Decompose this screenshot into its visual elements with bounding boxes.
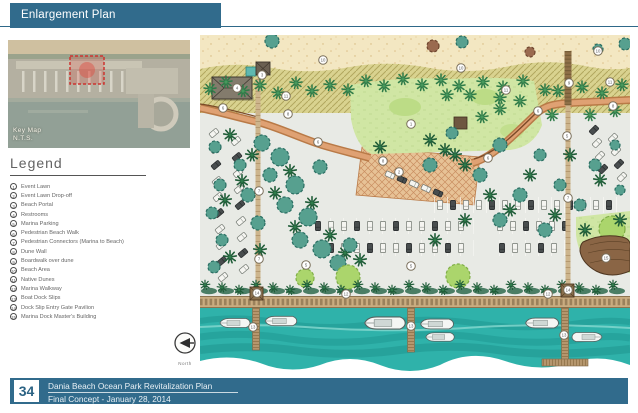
map-marker-7: 7 <box>564 194 573 203</box>
legend-item-label: Dune Wall <box>21 249 47 255</box>
legend-item: 6Pedestrian Beach Walk <box>10 228 195 237</box>
legend-item: 8Dune Wall <box>10 247 195 256</box>
legend-item: 7Pedestrian Connectors (Marina to Beach) <box>10 238 195 247</box>
legend-item-label: Event Lawn Drop-off <box>21 193 72 199</box>
map-marker-11: 11 <box>282 92 291 101</box>
key-map-caption: Key Map N.T.S. <box>13 127 41 142</box>
legend-item-number: 2 <box>10 192 17 199</box>
map-marker-8: 8 <box>609 102 618 111</box>
svg-text:12: 12 <box>344 292 349 297</box>
legend-item: 3Beach Portal <box>10 201 195 210</box>
map-marker-10: 10 <box>319 56 328 65</box>
legend-item-label: Marina Walkway <box>21 286 62 292</box>
dropoff-plaza <box>356 147 480 205</box>
map-marker-2: 2 <box>395 168 404 177</box>
svg-text:11: 11 <box>284 94 289 99</box>
legend-title: Legend <box>10 155 146 176</box>
svg-text:11: 11 <box>504 88 509 93</box>
svg-text:13: 13 <box>251 325 256 330</box>
legend-item: 1Event Lawn <box>10 182 195 191</box>
page-number: 34 <box>14 380 39 402</box>
map-marker-11: 11 <box>502 86 511 95</box>
legend-item: 13Boat Dock Slips <box>10 294 195 303</box>
legend-item-number: 5 <box>10 220 17 227</box>
svg-text:12: 12 <box>546 292 551 297</box>
north-arrow: North <box>169 331 201 366</box>
marina-walkway <box>200 296 630 308</box>
svg-text:13: 13 <box>562 333 567 338</box>
legend-item-label: Marina Dock Master's Building <box>21 314 96 320</box>
legend-item-number: 9 <box>10 258 17 265</box>
map-marker-8: 8 <box>284 110 293 119</box>
legend-item-number: 8 <box>10 248 17 255</box>
legend-items: 1Event Lawn2Event Lawn Drop-off3Beach Po… <box>10 182 195 321</box>
map-marker-4: 4 <box>233 84 242 93</box>
map-marker-12: 12 <box>342 290 351 299</box>
north-arrow-icon <box>171 331 199 357</box>
legend-item: 5Marina Parking <box>10 219 195 228</box>
footer-bar: 34 Dania Beach Ocean Park Revitalization… <box>10 378 628 404</box>
legend-item-number: 10 <box>10 267 17 274</box>
map-marker-5: 5 <box>302 261 311 270</box>
svg-text:10: 10 <box>596 49 601 54</box>
legend-item-number: 12 <box>10 285 17 292</box>
legend-item-label: Event Lawn <box>21 184 50 190</box>
legend-item-number: 6 <box>10 230 17 237</box>
legend-item-label: Marina Parking <box>21 221 59 227</box>
legend-item-label: Boardwalk over dune <box>21 258 74 264</box>
svg-text:14: 14 <box>255 291 260 296</box>
map-marker-14: 14 <box>253 289 262 298</box>
map-marker-6: 6 <box>484 154 493 163</box>
legend-item-label: Pedestrian Connectors (Marina to Beach) <box>21 239 124 245</box>
legend-item-label: Dock Slip Entry Gate Pavilion <box>21 305 94 311</box>
legend-item-label: Restrooms <box>21 212 48 218</box>
lawn-stage <box>454 117 467 129</box>
map-marker-10: 10 <box>594 47 603 56</box>
legend-item-number: 13 <box>10 295 17 302</box>
map-marker-10: 10 <box>457 64 466 73</box>
svg-text:15: 15 <box>604 256 609 261</box>
legend-item: 12Marina Walkway <box>10 284 195 293</box>
legend: Legend 1Event Lawn2Event Lawn Drop-off3B… <box>10 155 195 321</box>
svg-text:13: 13 <box>409 324 414 329</box>
legend-item: 14Dock Slip Entry Gate Pavilion <box>10 303 195 312</box>
map-marker-8: 8 <box>379 157 388 166</box>
legend-item-number: 14 <box>10 304 17 311</box>
map-marker-6: 6 <box>219 104 228 113</box>
map-marker-15: 15 <box>602 254 611 263</box>
map-marker-7: 7 <box>255 255 264 264</box>
svg-text:14: 14 <box>566 288 571 293</box>
legend-item-label: Native Dunes <box>21 277 55 283</box>
footer-title: Dania Beach Ocean Park Revitalization Pl… <box>48 381 238 394</box>
legend-item: 4Restrooms <box>10 210 195 219</box>
map-marker-12: 12 <box>544 290 553 299</box>
map-marker-5: 5 <box>563 132 572 141</box>
legend-item: 10Beach Area <box>10 266 195 275</box>
north-label: North <box>169 361 201 366</box>
map-marker-13: 13 <box>407 322 416 331</box>
legend-item-label: Pedestrian Beach Walk <box>21 230 79 236</box>
legend-item-label: Beach Area <box>21 267 50 273</box>
map-marker-13: 13 <box>560 331 569 340</box>
map-marker-13: 13 <box>249 323 258 332</box>
map-marker-11: 11 <box>606 78 615 87</box>
legend-item: 15Marina Dock Master's Building <box>10 312 195 321</box>
map-marker-9: 9 <box>565 79 574 88</box>
legend-item-number: 3 <box>10 202 17 209</box>
site-plan: 1234555666677788891010101111111212131313… <box>200 35 630 377</box>
legend-item-number: 7 <box>10 239 17 246</box>
map-marker-7: 7 <box>255 187 264 196</box>
slide: Enlargement Plan Key Map N.T.S. Legend 1… <box>0 0 638 413</box>
map-marker-14: 14 <box>564 286 573 295</box>
legend-item-number: 4 <box>10 211 17 218</box>
svg-text:10: 10 <box>321 58 326 63</box>
legend-item-label: Boat Dock Slips <box>21 295 60 301</box>
page-title: Enlargement Plan <box>10 3 221 28</box>
legend-item: 11Native Dunes <box>10 275 195 284</box>
legend-item-label: Beach Portal <box>21 202 53 208</box>
legend-item-number: 1 <box>10 183 17 190</box>
key-map-highlight <box>70 56 104 84</box>
legend-item: 9Boardwalk over dune <box>10 256 195 265</box>
map-marker-1: 1 <box>407 120 416 129</box>
key-map: Key Map N.T.S. <box>8 40 190 148</box>
svg-text:10: 10 <box>459 66 464 71</box>
legend-item-number: 11 <box>10 276 17 283</box>
svg-text:11: 11 <box>608 80 613 85</box>
legend-item: 2Event Lawn Drop-off <box>10 191 195 200</box>
map-marker-6: 6 <box>534 107 543 116</box>
legend-item-number: 15 <box>10 313 17 320</box>
map-marker-3: 3 <box>258 71 267 80</box>
map-marker-6: 6 <box>314 138 323 147</box>
footer-subtitle: Final Concept - January 28, 2014 <box>48 393 628 405</box>
map-marker-5: 5 <box>407 262 416 271</box>
